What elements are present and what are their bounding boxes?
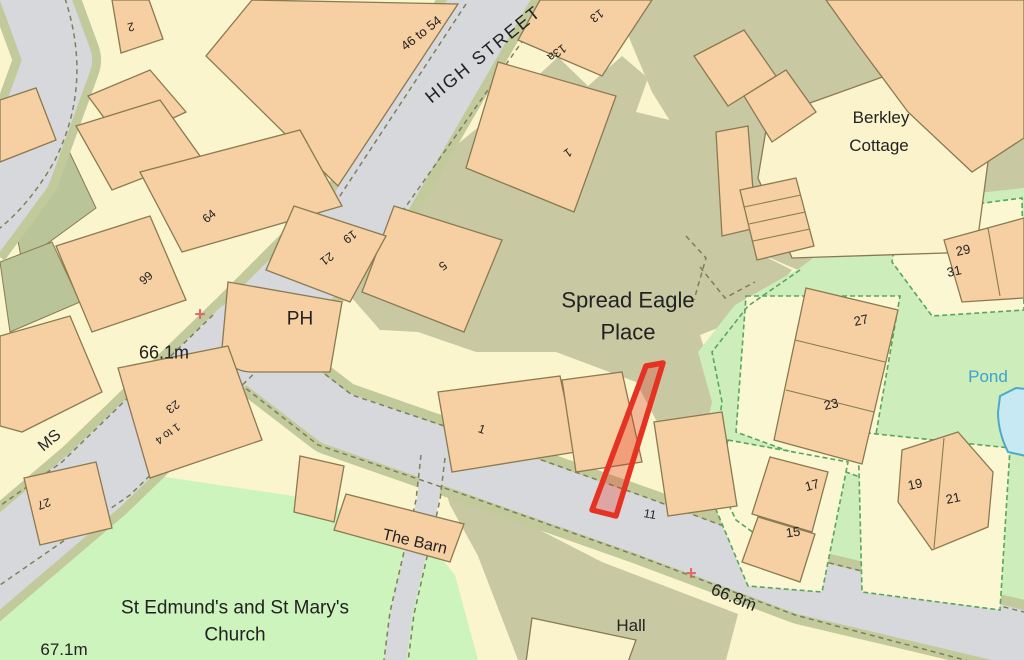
label-place: Place [600, 320, 655, 345]
label-st-edmund-s-and-st-mary-s: St Edmund's and St Mary's [121, 598, 349, 619]
label-hall: Hall [616, 616, 645, 635]
label-cottage: Cottage [849, 136, 909, 155]
label-pond: Pond [968, 367, 1008, 386]
os-style-map: 246 to 54HIGH STREET1313a1BerkleyCottage… [0, 0, 1024, 660]
label-berkley: Berkley [853, 108, 910, 127]
label-21: 21 [944, 489, 961, 507]
label-31: 31 [945, 262, 962, 280]
benchmark-cross: + [194, 305, 205, 326]
label-27: 27 [852, 311, 869, 329]
label-19: 19 [906, 475, 923, 493]
label-spread-eagle: Spread Eagle [561, 288, 694, 313]
label-29: 29 [954, 241, 971, 259]
label-23: 23 [822, 395, 839, 413]
label-church: Church [204, 625, 265, 646]
label-15: 15 [785, 524, 801, 541]
map-canvas: 246 to 54HIGH STREET1313a1BerkleyCottage… [0, 0, 1024, 660]
label-66-1m: 66.1m [139, 342, 189, 362]
label-ph: PH [287, 309, 313, 330]
building-11 [654, 412, 737, 516]
label-67-1m: 67.1m [40, 640, 87, 659]
benchmark-cross: + [685, 564, 696, 585]
